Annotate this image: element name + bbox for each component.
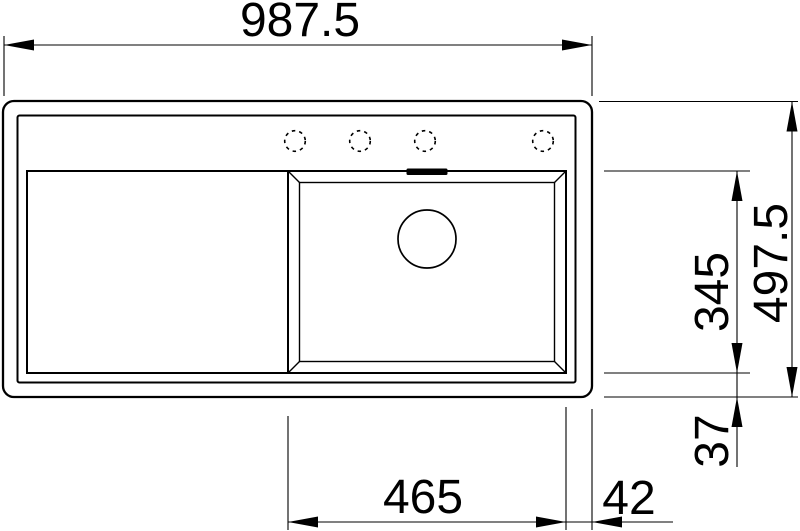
dim-label-bowl-width: 465: [383, 471, 463, 524]
dim-label-overall-depth: 497.5: [745, 203, 798, 323]
dim-bowl-bottom-offset: 37: [686, 373, 743, 468]
arrowhead-top: [787, 102, 798, 132]
tap-holes: [285, 131, 554, 152]
bowl: [288, 169, 566, 374]
sink-technical-drawing: 987.5 497.5 345 37: [0, 0, 800, 531]
dim-overall-depth: 497.5: [599, 102, 798, 398]
sink-rim: [18, 116, 576, 383]
arrowhead-top: [732, 171, 743, 201]
overflow-slot: [407, 169, 448, 176]
arrowhead-left: [4, 40, 34, 51]
tap-hole-3: [415, 131, 436, 152]
bowl-outer-edge: [288, 171, 566, 373]
arrowhead-bottom: [732, 343, 743, 373]
drainboard: [27, 171, 288, 373]
drain-circle: [398, 210, 456, 268]
tap-hole-2: [350, 131, 371, 152]
bowl-corner-chamfers: [288, 171, 566, 373]
arrowhead-right: [536, 517, 566, 528]
drainboard-edge: [27, 171, 288, 373]
dim-overall-width: 987.5: [4, 0, 592, 96]
arrowhead-left: [288, 517, 318, 528]
dim-bowl-width: 465: [288, 407, 566, 530]
tap-hole-4: [533, 131, 554, 152]
arrowhead-bottom: [787, 367, 798, 397]
dim-bowl-depth: 345: [604, 171, 750, 373]
dim-label-bowl-right-offset: 42: [602, 472, 655, 525]
drawing-canvas: 987.5 497.5 345 37: [0, 0, 800, 531]
dim-label-overall-width: 987.5: [240, 0, 360, 47]
arrowhead-right: [562, 40, 592, 51]
dim-label-bowl-depth: 345: [686, 252, 739, 332]
sink-outer-edge: [3, 101, 592, 397]
dim-label-bowl-bottom-offset: 37: [686, 414, 739, 467]
sink-outline: [3, 101, 592, 397]
dim-bowl-right-offset: 42: [566, 409, 673, 530]
tap-hole-1: [285, 131, 306, 152]
